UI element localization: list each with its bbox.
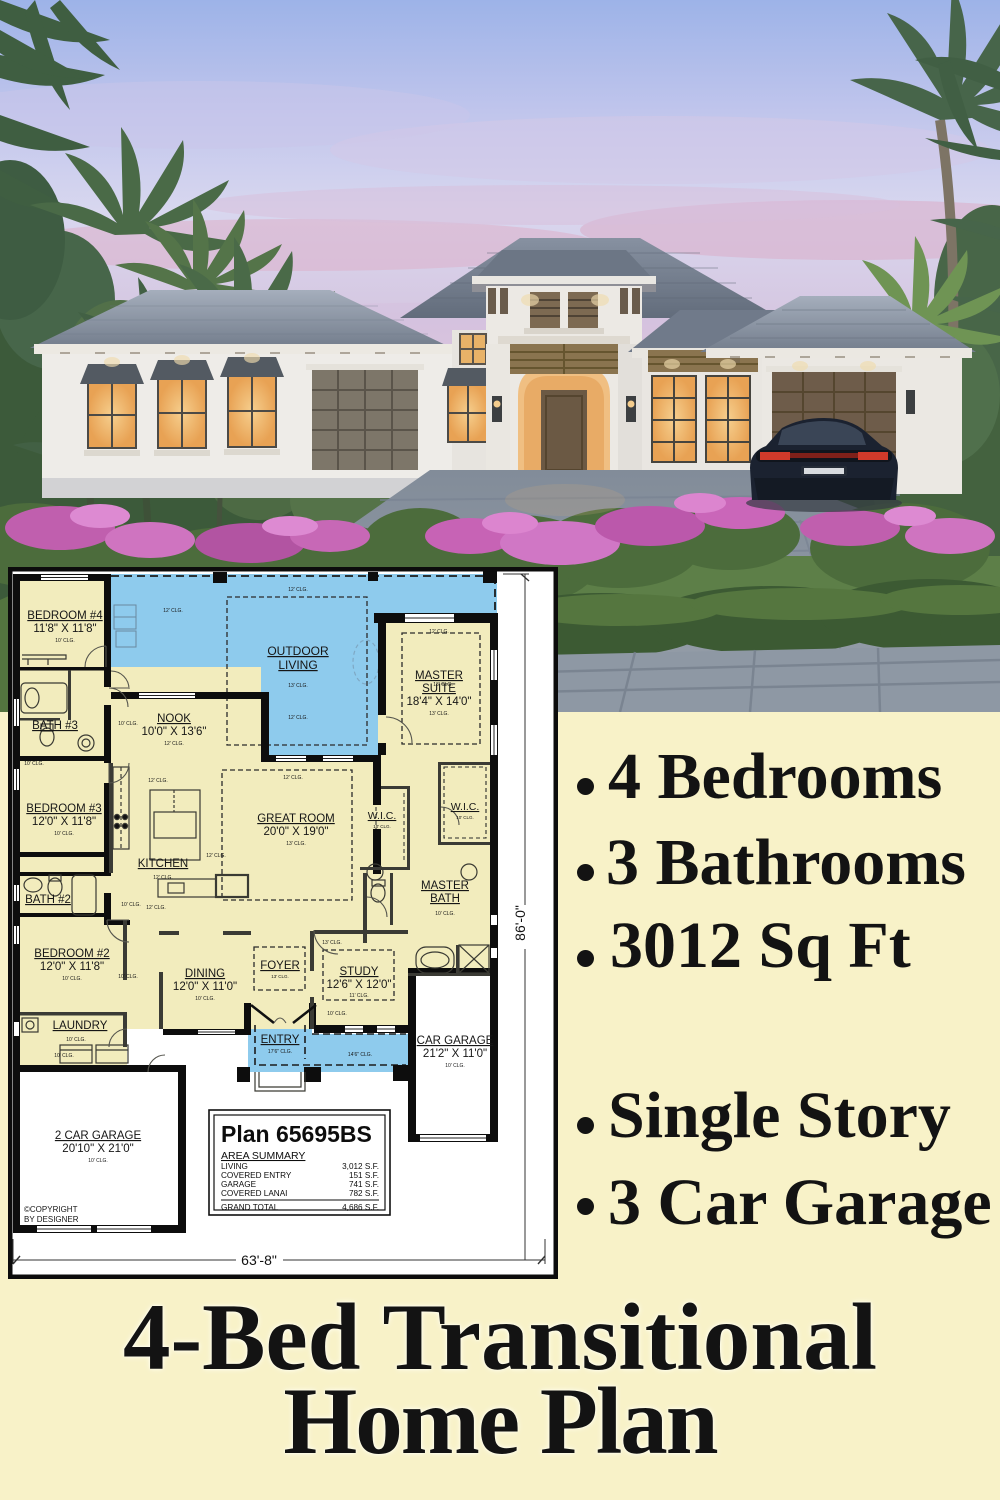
- svg-text:151 S.F.: 151 S.F.: [349, 1171, 379, 1180]
- svg-text:LIVING: LIVING: [278, 658, 317, 672]
- svg-text:BEDROOM #2: BEDROOM #2: [34, 948, 109, 960]
- svg-text:18'4" X 14'0": 18'4" X 14'0": [407, 696, 472, 708]
- svg-text:12' CLG.: 12' CLG.: [146, 905, 166, 911]
- svg-text:10' CLG.: 10' CLG.: [88, 1158, 108, 1164]
- svg-text:13' CLG.: 13' CLG.: [271, 974, 289, 979]
- svg-text:BATH #3: BATH #3: [32, 720, 78, 732]
- svg-text:13' CLG.: 13' CLG.: [286, 841, 306, 847]
- svg-text:2 CAR GARAGE: 2 CAR GARAGE: [55, 1130, 142, 1142]
- svg-text:4,686 S.F.: 4,686 S.F.: [342, 1203, 379, 1212]
- svg-text:OUTDOOR: OUTDOOR: [267, 644, 329, 658]
- svg-text:11' CLG.: 11' CLG.: [349, 993, 368, 999]
- svg-text:10' CLG.: 10' CLG.: [54, 1053, 74, 1059]
- svg-text:MASTER: MASTER: [421, 880, 469, 892]
- svg-text:10' CLG.: 10' CLG.: [445, 1063, 465, 1069]
- svg-text:741 S.F.: 741 S.F.: [349, 1180, 379, 1189]
- svg-text:FOYER: FOYER: [260, 960, 300, 972]
- svg-text:10' CLG.: 10' CLG.: [435, 911, 455, 917]
- svg-text:10' CLG.: 10' CLG.: [118, 721, 138, 727]
- svg-text:10' CLG.: 10' CLG.: [456, 815, 474, 820]
- svg-text:AREA SUMMARY: AREA SUMMARY: [221, 1150, 305, 1162]
- svg-text:13' CLG.: 13' CLG.: [433, 682, 453, 688]
- svg-text:13' CLG.: 13' CLG.: [429, 711, 449, 717]
- svg-text:BY DESIGNER: BY DESIGNER: [24, 1215, 79, 1224]
- svg-text:ENTRY: ENTRY: [261, 1034, 300, 1046]
- svg-text:20'10" X 21'0": 20'10" X 21'0": [62, 1143, 133, 1155]
- svg-text:12'0" X 11'8": 12'0" X 11'8": [40, 961, 104, 973]
- svg-text:12' CLG.: 12' CLG.: [164, 741, 184, 747]
- svg-text:12'0" X 11'0": 12'0" X 11'0": [173, 981, 237, 993]
- svg-text:10' CLG.: 10' CLG.: [66, 1037, 86, 1043]
- svg-text:DINING: DINING: [185, 968, 225, 980]
- svg-text:10' CLG.: 10' CLG.: [118, 974, 138, 980]
- svg-text:12' CLG.: 12' CLG.: [283, 775, 303, 781]
- svg-text:13' CLG.: 13' CLG.: [288, 683, 308, 689]
- svg-text:©COPYRIGHT: ©COPYRIGHT: [24, 1205, 78, 1214]
- svg-text:17'6" CLG.: 17'6" CLG.: [268, 1049, 292, 1055]
- svg-text:10' CLG.: 10' CLG.: [121, 902, 141, 908]
- svg-text:12' CLG.: 12' CLG.: [163, 608, 183, 614]
- svg-text:10' CLG.: 10' CLG.: [327, 1011, 347, 1017]
- svg-text:10'0" X 13'6": 10'0" X 13'6": [142, 726, 207, 738]
- svg-text:11'8" X 11'8": 11'8" X 11'8": [33, 623, 96, 635]
- svg-text:COVERED ENTRY: COVERED ENTRY: [221, 1171, 292, 1180]
- svg-text:LAUNDRY: LAUNDRY: [53, 1020, 108, 1032]
- svg-text:63'-8": 63'-8": [241, 1252, 277, 1268]
- svg-text:12' CLG.: 12' CLG.: [206, 853, 226, 859]
- svg-text:10' CLG.: 10' CLG.: [62, 976, 82, 982]
- svg-text:10' CLG.: 10' CLG.: [24, 761, 44, 767]
- svg-text:20'0" X 19'0": 20'0" X 19'0": [264, 826, 329, 838]
- svg-text:GREAT ROOM: GREAT ROOM: [257, 813, 335, 825]
- svg-text:W.I.C.: W.I.C.: [451, 801, 480, 813]
- svg-text:10' CLG.: 10' CLG.: [373, 824, 391, 829]
- svg-text:12' CLG.: 12' CLG.: [288, 587, 308, 593]
- svg-text:3,012 S.F.: 3,012 S.F.: [342, 1162, 379, 1171]
- svg-text:12' CLG.: 12' CLG.: [429, 629, 449, 635]
- svg-text:LIVING: LIVING: [221, 1162, 248, 1171]
- svg-text:W.I.C.: W.I.C.: [368, 810, 397, 822]
- svg-text:12' CLG.: 12' CLG.: [288, 715, 308, 721]
- svg-text:KITCHEN: KITCHEN: [138, 858, 188, 870]
- svg-text:12'0" X 11'8": 12'0" X 11'8": [32, 816, 96, 828]
- svg-text:782 S.F.: 782 S.F.: [349, 1189, 379, 1198]
- svg-text:12'6" X 12'0": 12'6" X 12'0": [327, 979, 392, 991]
- svg-text:COVERED LANAI: COVERED LANAI: [221, 1189, 287, 1198]
- svg-text:BATH #2: BATH #2: [25, 894, 71, 906]
- svg-text:MASTER: MASTER: [415, 670, 463, 682]
- svg-text:NOOK: NOOK: [157, 713, 191, 725]
- svg-text:14'6" CLG.: 14'6" CLG.: [348, 1052, 372, 1058]
- svg-text:CAR GARAGE: CAR GARAGE: [417, 1035, 494, 1047]
- svg-text:GARAGE: GARAGE: [221, 1180, 257, 1189]
- svg-text:STUDY: STUDY: [340, 966, 379, 978]
- svg-text:12' CLG.: 12' CLG.: [153, 875, 173, 881]
- svg-text:86'-0": 86'-0": [512, 905, 528, 941]
- svg-text:BEDROOM #4: BEDROOM #4: [27, 610, 103, 622]
- svg-text:BATH: BATH: [430, 893, 460, 905]
- svg-text:13' CLG.: 13' CLG.: [322, 940, 342, 946]
- svg-text:21'2" X 11'0": 21'2" X 11'0": [423, 1048, 487, 1060]
- svg-text:GRAND TOTAL: GRAND TOTAL: [221, 1203, 279, 1212]
- svg-text:Plan 65695BS: Plan 65695BS: [221, 1121, 372, 1147]
- svg-text:12' CLG.: 12' CLG.: [148, 778, 168, 784]
- svg-text:10' CLG.: 10' CLG.: [54, 831, 74, 837]
- svg-text:10' CLG.: 10' CLG.: [55, 638, 75, 644]
- svg-text:BEDROOM #3: BEDROOM #3: [26, 803, 101, 815]
- svg-text:10' CLG.: 10' CLG.: [195, 996, 215, 1002]
